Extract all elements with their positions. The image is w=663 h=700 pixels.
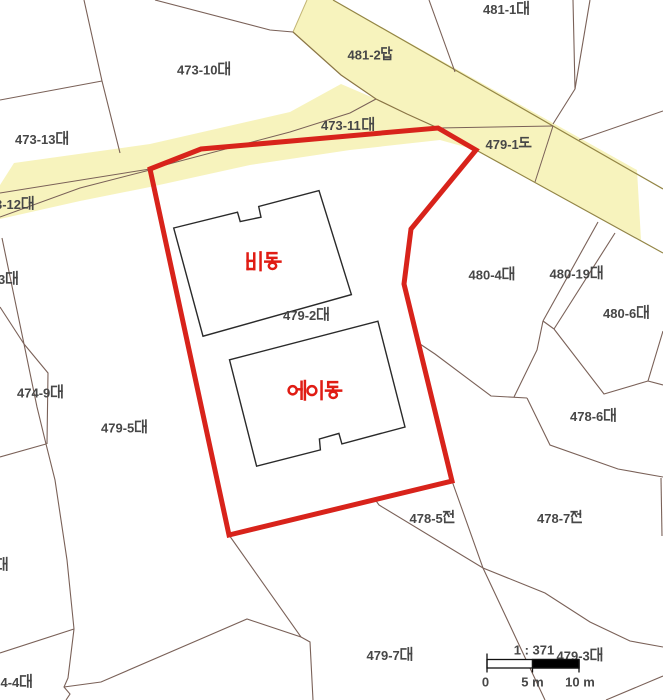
svg-text:1 : 371: 1 : 371: [514, 643, 554, 658]
svg-text:5 m: 5 m: [521, 675, 543, 690]
svg-text:473-13: 473-13: [15, 132, 55, 147]
svg-text:474-4: 474-4: [0, 675, 20, 690]
svg-text:10 m: 10 m: [565, 675, 595, 690]
svg-text:473-10: 473-10: [177, 63, 217, 78]
svg-text:474-9: 474-9: [17, 386, 50, 401]
svg-text:0: 0: [482, 675, 489, 690]
svg-text:473-11: 473-11: [321, 118, 361, 133]
svg-text:478-7: 478-7: [537, 511, 570, 526]
svg-text:480-19: 480-19: [550, 267, 590, 282]
svg-text:480-4: 480-4: [469, 268, 503, 283]
svg-text:479-7: 479-7: [367, 648, 400, 663]
svg-text:479-5: 479-5: [101, 421, 134, 436]
svg-text:3: 3: [0, 272, 5, 287]
svg-text:479-1: 479-1: [486, 137, 519, 152]
svg-text:480-6: 480-6: [603, 306, 636, 321]
svg-text:478-5: 478-5: [410, 511, 443, 526]
svg-text:478-6: 478-6: [570, 409, 603, 424]
svg-text:481-1: 481-1: [483, 2, 516, 17]
svg-text:481-2: 481-2: [348, 48, 381, 63]
svg-text:479-2: 479-2: [283, 308, 316, 323]
svg-text:3-12: 3-12: [0, 197, 21, 212]
